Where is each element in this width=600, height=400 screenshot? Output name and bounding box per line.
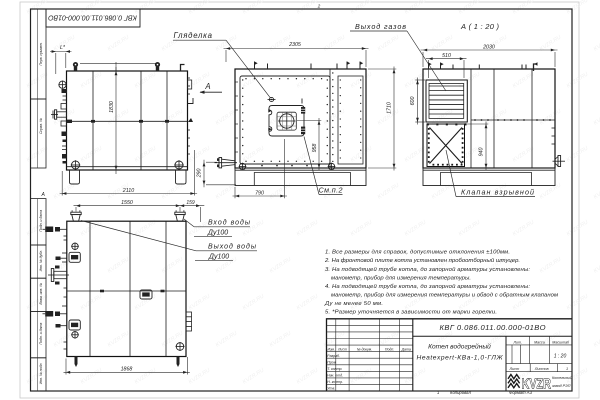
svg-text:1868: 1868 xyxy=(121,367,133,373)
svg-text:Вход воды: Вход воды xyxy=(208,219,251,227)
svg-text:Инв. № подл.: Инв. № подл. xyxy=(39,363,43,385)
svg-text:Ду100: Ду100 xyxy=(207,230,228,237)
svg-text:завод РЭП: завод РЭП xyxy=(551,384,571,388)
svg-text:Пров.: Пров. xyxy=(327,360,336,364)
svg-text:Выход газов: Выход газов xyxy=(355,22,406,31)
svg-text:А: А xyxy=(204,82,210,91)
svg-text:Котельный: Котельный xyxy=(552,376,572,380)
svg-text:манометр, прибор для измерения: манометр, прибор для измерения температу… xyxy=(331,275,471,281)
svg-text:Подп. и дата: Подп. и дата xyxy=(39,323,43,345)
svg-text:940: 940 xyxy=(479,148,485,157)
svg-text:4. На подводящей трубе котла,: 4. На подводящей трубе котла, до запорно… xyxy=(325,283,530,290)
svg-text:КВГ 0.086.011.00.000-01ВО: КВГ 0.086.011.00.000-01ВО xyxy=(440,323,546,332)
svg-text:Листов: Листов xyxy=(534,367,549,371)
svg-text:5. *Размер уточняется в зависи: 5. *Размер уточняется в зависимости от м… xyxy=(325,310,497,316)
svg-text:Формат А3: Формат А3 xyxy=(509,390,533,395)
svg-text:Ду не менее 50 мм.: Ду не менее 50 мм. xyxy=(324,301,383,307)
svg-text:3. На подводящей трубе котла,: 3. На подводящей трубе котла, до запорно… xyxy=(325,266,530,273)
svg-text:Изм.: Изм. xyxy=(327,347,334,351)
svg-text:2030: 2030 xyxy=(482,44,495,50)
svg-text:1: 1 xyxy=(566,367,568,371)
svg-text:Дата: Дата xyxy=(401,347,411,351)
svg-text:Н. контр.: Н. контр. xyxy=(327,380,343,384)
svg-text:Инв. № дубл.: Инв. № дубл. xyxy=(39,250,43,272)
svg-text:790: 790 xyxy=(255,190,264,196)
svg-text:290: 290 xyxy=(197,169,203,179)
svg-text:КВГ 0.086.011.00.000-01ВО: КВГ 0.086.011.00.000-01ВО xyxy=(48,14,137,21)
svg-text:№ докум.: № докум. xyxy=(357,347,372,351)
svg-text:Лит.: Лит. xyxy=(512,340,521,344)
svg-text:А: А xyxy=(41,192,46,198)
svg-text:Подп.: Подп. xyxy=(385,347,394,351)
svg-text:Утв.: Утв. xyxy=(327,387,335,391)
svg-text:манометр, прибор для измерения: манометр, прибор для измерения температу… xyxy=(331,293,558,299)
svg-text:Котел водогрейный: Котел водогрейный xyxy=(428,342,491,350)
svg-text:Выход воды: Выход воды xyxy=(208,243,257,251)
svg-text:1. Все размеры для справок, до: 1. Все размеры для справок, допустимые о… xyxy=(325,250,510,256)
svg-text:Подп. и дата: Подп. и дата xyxy=(39,210,43,232)
svg-text:Масштаб: Масштаб xyxy=(552,340,570,344)
svg-text:1830: 1830 xyxy=(109,101,115,113)
svg-text:Разраб.: Разраб. xyxy=(327,354,340,358)
svg-text:1: 1 xyxy=(437,390,439,395)
svg-text:Копировал: Копировал xyxy=(450,390,471,395)
svg-text:600: 600 xyxy=(410,97,416,106)
svg-text:А ( 1 : 20 ): А ( 1 : 20 ) xyxy=(460,22,500,31)
svg-text:Нач. отд.: Нач. отд. xyxy=(327,374,343,378)
svg-text:Лист: Лист xyxy=(509,367,520,371)
svg-text:2305: 2305 xyxy=(288,42,301,48)
svg-text:Гляделка: Гляделка xyxy=(173,31,212,40)
svg-text:Клапан взрывной: Клапан взрывной xyxy=(461,188,534,197)
svg-text:159: 159 xyxy=(186,200,195,206)
svg-text:Т. контр.: Т. контр. xyxy=(327,367,342,371)
svg-text:Heatexpert-КВа-1,0-ГЛЖ: Heatexpert-КВа-1,0-ГЛЖ xyxy=(417,354,504,361)
svg-text:Лист: Лист xyxy=(337,347,347,351)
svg-text:2: 2 xyxy=(317,4,321,9)
svg-text:Перв. примен.: Перв. примен. xyxy=(39,42,43,65)
svg-text:См.п.2: См.п.2 xyxy=(319,186,343,195)
svg-text:1710: 1710 xyxy=(387,102,393,114)
svg-text:2110: 2110 xyxy=(122,188,134,194)
svg-text:Масса: Масса xyxy=(534,340,545,344)
svg-text:510: 510 xyxy=(442,53,451,59)
svg-text:1 : 20: 1 : 20 xyxy=(554,354,567,360)
svg-text:Взам. инв. №: Взам. инв. № xyxy=(39,283,43,305)
svg-text:Справ. №: Справ. № xyxy=(39,118,43,134)
svg-text:1550: 1550 xyxy=(121,200,133,206)
svg-text:958: 958 xyxy=(312,144,318,153)
svg-text:Ду100: Ду100 xyxy=(208,254,229,261)
svg-text:2. На фронтовой плите котла ус: 2. На фронтовой плите котла установлен п… xyxy=(324,257,520,264)
